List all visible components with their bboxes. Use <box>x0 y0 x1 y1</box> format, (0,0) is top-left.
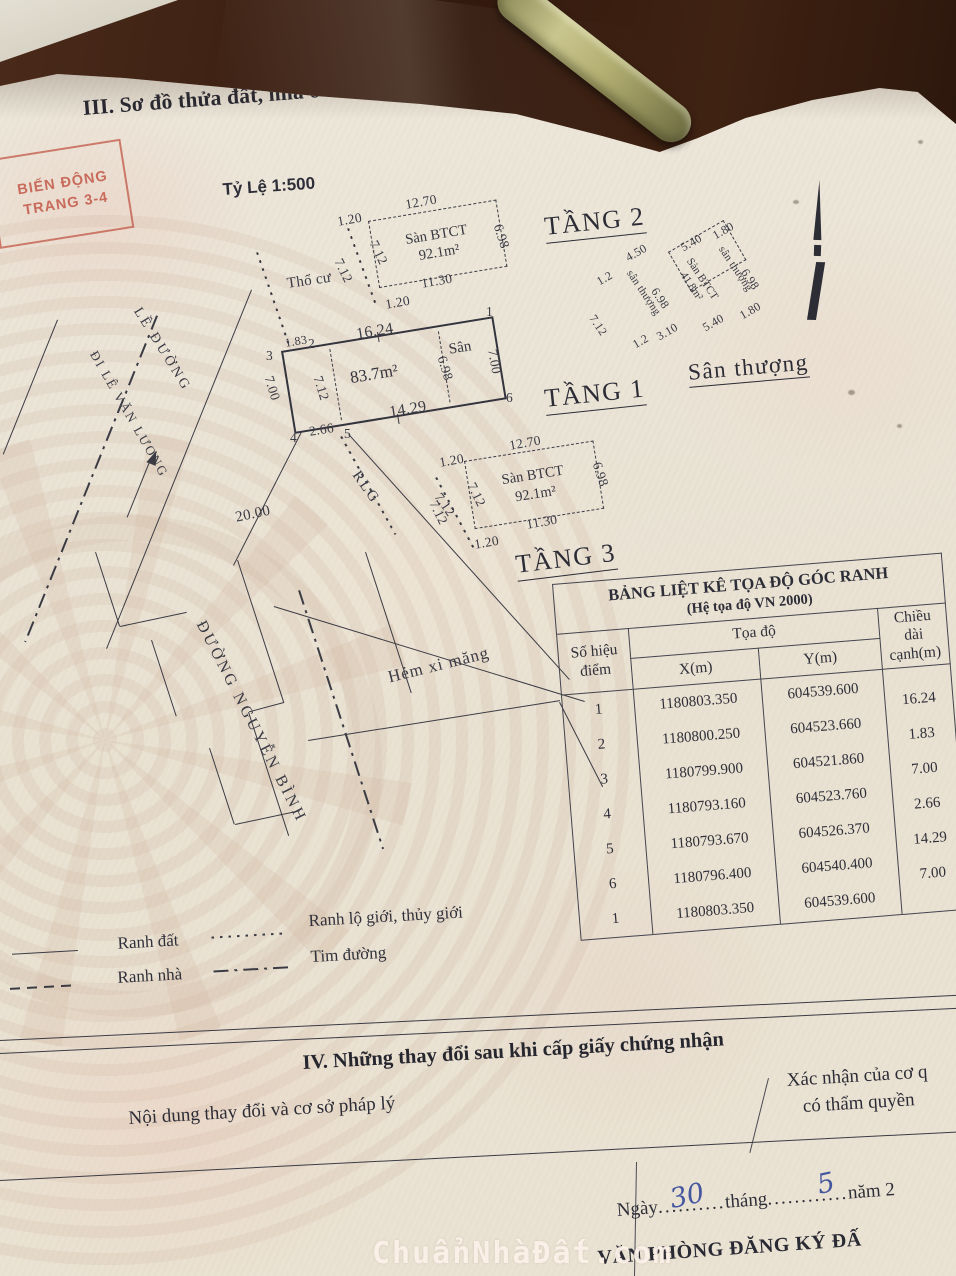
legend-dotted-sample <box>211 933 283 939</box>
legend-ranh-lo-gioi: Ranh lộ giới, thủy giới <box>308 903 463 932</box>
point-id-cell: 6 <box>575 864 650 905</box>
point-label: 6 <box>506 390 513 406</box>
point-id-cell: 3 <box>567 759 642 800</box>
photographed-land-certificate: III. Sơ đồ thửa đất, nhà ở và tài sản kh… <box>0 0 956 1276</box>
point-id-cell: 5 <box>573 829 648 870</box>
col-length-header: Chiều dàicạnh(m) <box>877 603 950 669</box>
dim: 1.80 <box>737 299 764 323</box>
point-id-cell: 1 <box>578 899 653 940</box>
dim: 7.12 <box>586 312 611 339</box>
date-line: Ngày..........tháng............năm 2 30 … <box>616 1179 896 1222</box>
ngay-label: Ngày <box>616 1197 659 1222</box>
dim: 3.10 <box>654 320 681 344</box>
col-point-header: Số hiệuđiểm <box>557 628 634 694</box>
legend-tim-duong: Tim đường <box>310 943 387 967</box>
tang2-label: TẦNG 2 <box>543 201 647 243</box>
legend-ranh-dat: Ranh đất <box>117 930 179 953</box>
col-confirm-line1: Xác nhận của cơ q <box>786 1061 928 1091</box>
point-label: 1 <box>486 304 493 320</box>
tang1-inner-dash-left <box>329 349 342 420</box>
tang1-yard: Sân <box>448 338 473 358</box>
point-id-cell: 2 <box>564 724 639 765</box>
point-id-cell: 4 <box>570 794 645 835</box>
speck <box>793 200 799 204</box>
point-id-cell: 1 <box>561 689 636 730</box>
legend-solid-sample <box>12 950 78 955</box>
legend-dashdot-sample <box>213 966 289 972</box>
certificate-page: III. Sơ đồ thửa đất, nhà ở và tài sản kh… <box>0 0 956 1276</box>
col-confirm-header: Xác nhận của cơ q có thẩm quyền <box>786 1059 930 1121</box>
dim: 7.00 <box>484 348 504 375</box>
scale-label: Tỷ Lệ 1:500 <box>222 174 316 200</box>
legend-dashed-sample <box>10 984 78 990</box>
nam-label: năm 2 <box>847 1179 895 1204</box>
san-thuong-label: Sân thượng <box>687 349 810 387</box>
photo-watermark: ChuẩnNhàĐất.com <box>372 1236 673 1271</box>
north-arrow-icon <box>802 180 833 321</box>
dim: 1.2 <box>594 268 615 289</box>
tang1-area: 83.7m² <box>349 361 400 389</box>
speck <box>897 424 902 428</box>
thang-label: tháng <box>724 1189 768 1214</box>
legend-ranh-nha: Ranh nhà <box>117 964 183 988</box>
coordinate-table: BẢNG LIỆT KÊ TỌA ĐỘ GÓC RANH (Hệ tọa độ … <box>552 553 956 941</box>
tang1-label: TẦNG 1 <box>543 373 647 415</box>
edge-length-cell: 16.24 <box>882 663 953 704</box>
dim: 1.20 <box>336 210 363 230</box>
col-confirm-line2: có thẩm quyền <box>802 1089 915 1117</box>
point-label: 3 <box>266 348 273 364</box>
point-label: 2 <box>308 336 315 352</box>
dim: 4.50 <box>623 241 650 265</box>
dim: 5.40 <box>700 311 727 335</box>
dim: 1.2 <box>630 331 651 352</box>
speck <box>848 390 855 395</box>
